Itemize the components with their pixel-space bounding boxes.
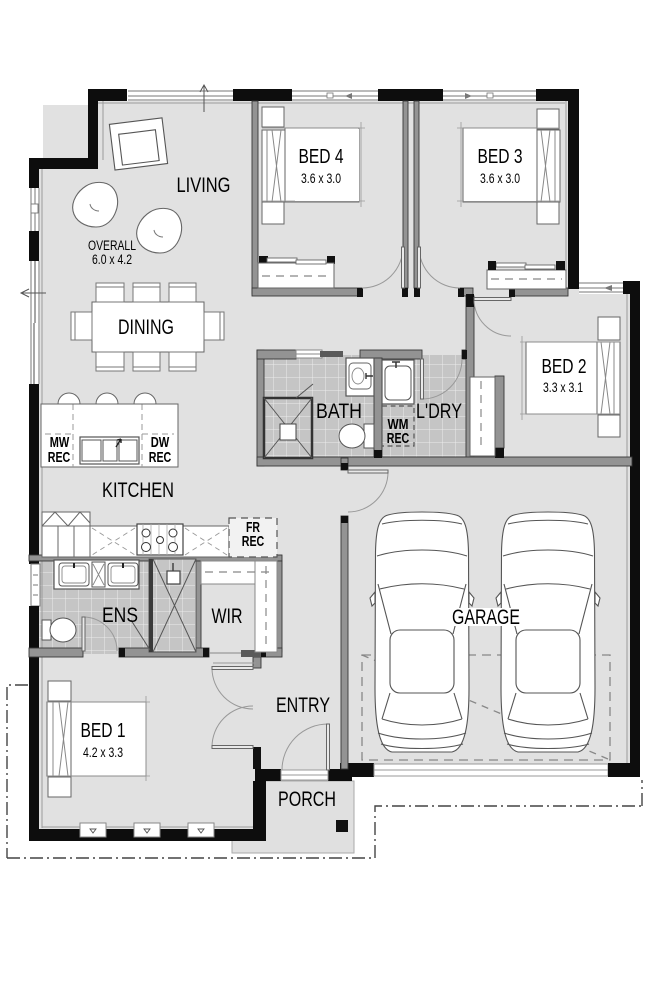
svg-text:BED 4: BED 4	[299, 146, 344, 168]
svg-text:REC: REC	[387, 430, 410, 447]
svg-text:3.3 x 3.1: 3.3 x 3.1	[543, 379, 583, 395]
svg-text:DINING: DINING	[118, 316, 174, 339]
svg-text:ENTRY: ENTRY	[276, 694, 330, 717]
svg-text:4.2 x 3.3: 4.2 x 3.3	[83, 744, 123, 760]
svg-text:REC: REC	[48, 449, 71, 466]
svg-text:PORCH: PORCH	[278, 788, 336, 811]
svg-text:3.6 x 3.0: 3.6 x 3.0	[301, 170, 341, 186]
svg-text:REC: REC	[242, 533, 265, 550]
svg-text:OVERALL: OVERALL	[88, 238, 136, 253]
svg-text:BED 3: BED 3	[478, 146, 523, 168]
svg-text:ENS: ENS	[102, 604, 138, 627]
svg-text:BED 2: BED 2	[542, 356, 587, 378]
svg-text:KITCHEN: KITCHEN	[102, 479, 174, 502]
svg-text:BATH: BATH	[316, 400, 362, 423]
svg-text:6.0 x 4.2: 6.0 x 4.2	[92, 252, 132, 267]
svg-text:REC: REC	[149, 449, 172, 466]
svg-text:BED 1: BED 1	[81, 720, 126, 742]
svg-text:L'DRY: L'DRY	[416, 400, 462, 423]
svg-text:LIVING: LIVING	[177, 174, 231, 197]
svg-text:GARAGE: GARAGE	[452, 606, 520, 629]
svg-text:3.6 x 3.0: 3.6 x 3.0	[480, 170, 520, 186]
svg-text:WIR: WIR	[212, 605, 243, 628]
